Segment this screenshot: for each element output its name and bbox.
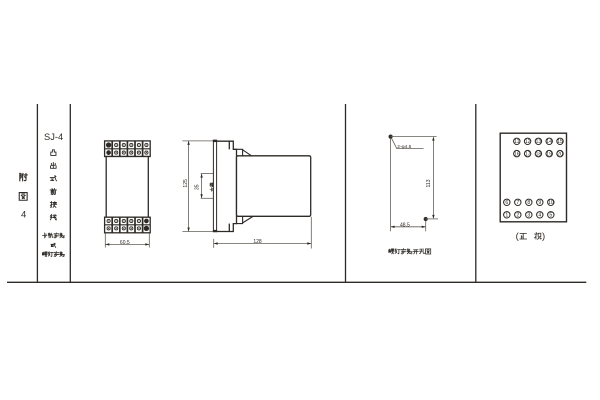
- svg-text:35: 35: [194, 184, 200, 190]
- svg-text:18: 18: [536, 151, 542, 157]
- svg-text:9: 9: [538, 200, 541, 206]
- svg-text:(: (: [516, 231, 520, 242]
- svg-text:16: 16: [514, 151, 520, 157]
- svg-text:10: 10: [548, 200, 554, 206]
- svg-text:19: 19: [546, 151, 552, 157]
- svg-text:11: 11: [514, 139, 519, 145]
- svg-text:14: 14: [546, 139, 552, 145]
- svg-text:5: 5: [549, 213, 552, 219]
- svg-text:2: 2: [516, 213, 519, 219]
- svg-text:15: 15: [557, 139, 563, 145]
- svg-text:4: 4: [538, 213, 541, 219]
- svg-text:128: 128: [253, 239, 262, 245]
- svg-text:20: 20: [557, 151, 563, 157]
- svg-text:4: 4: [21, 210, 26, 221]
- svg-text:2-φ4.5: 2-φ4.5: [397, 144, 411, 150]
- svg-text:60.5: 60.5: [120, 240, 130, 246]
- svg-text:7: 7: [516, 200, 519, 206]
- svg-text:SJ-4: SJ-4: [44, 132, 63, 142]
- svg-text:125: 125: [183, 179, 189, 188]
- svg-text:6: 6: [505, 200, 508, 206]
- svg-text:): ): [542, 231, 545, 242]
- svg-text:113: 113: [426, 179, 432, 187]
- svg-text:3: 3: [527, 213, 530, 219]
- svg-text:13: 13: [536, 139, 542, 145]
- svg-text:8: 8: [527, 200, 530, 206]
- svg-text:1: 1: [505, 213, 508, 219]
- svg-text:48.5: 48.5: [400, 222, 410, 228]
- svg-text:12: 12: [525, 139, 531, 145]
- svg-text:17: 17: [525, 151, 531, 157]
